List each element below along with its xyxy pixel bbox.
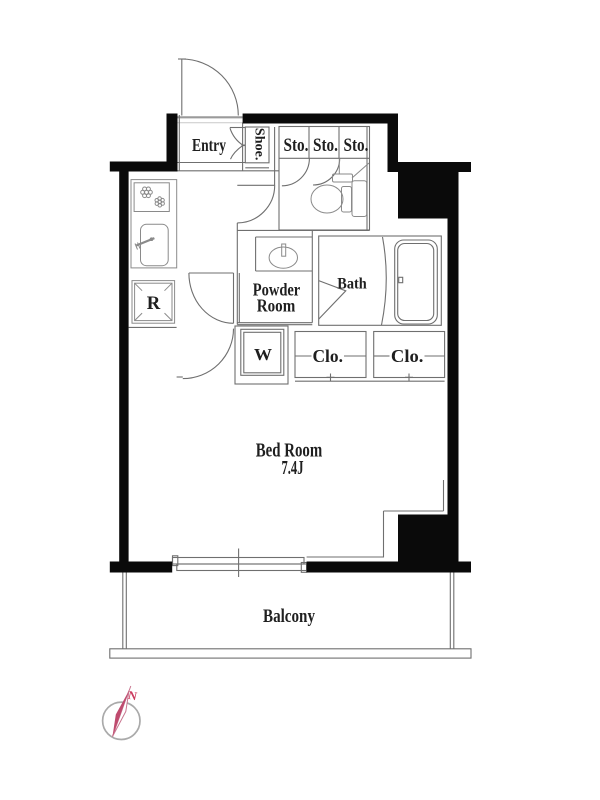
svg-text:Shoe.: Shoe. bbox=[252, 128, 267, 160]
svg-text:R: R bbox=[147, 293, 161, 314]
svg-text:Room: Room bbox=[257, 296, 296, 316]
svg-text:Entry: Entry bbox=[192, 135, 226, 155]
svg-text:Clo.: Clo. bbox=[312, 346, 343, 366]
svg-text:Clo.: Clo. bbox=[391, 346, 424, 366]
svg-text:W: W bbox=[254, 345, 272, 364]
svg-text:Balcony: Balcony bbox=[263, 606, 315, 627]
svg-text:7.4J: 7.4J bbox=[282, 458, 304, 479]
svg-text:Bath: Bath bbox=[337, 276, 367, 293]
svg-text:Sto.: Sto. bbox=[344, 136, 369, 156]
svg-text:Sto.: Sto. bbox=[284, 136, 309, 156]
svg-text:Sto.: Sto. bbox=[313, 136, 338, 156]
